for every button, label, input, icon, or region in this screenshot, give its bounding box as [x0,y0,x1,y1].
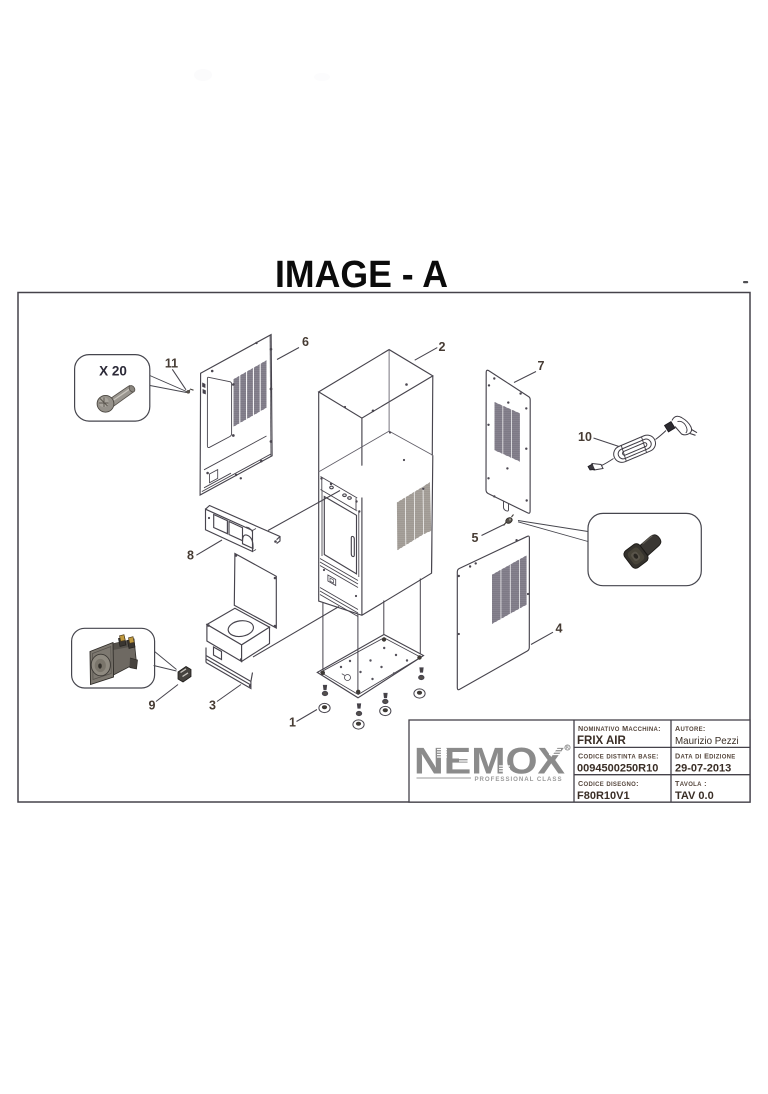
svg-text:3: 3 [209,699,216,713]
svg-text:FRIX AIR: FRIX AIR [577,735,626,747]
svg-text:8: 8 [187,549,194,563]
svg-text:5: 5 [472,531,479,545]
svg-text:10: 10 [578,430,592,444]
svg-text:9: 9 [149,699,156,713]
svg-text:0094500250R10: 0094500250R10 [577,763,658,775]
svg-text:F80R10V1: F80R10V1 [577,790,630,802]
svg-text:11: 11 [165,357,178,371]
svg-text:Maurizio Pezzi: Maurizio Pezzi [675,736,739,747]
svg-text:PROFESSIONAL CLASS: PROFESSIONAL CLASS [475,776,563,783]
svg-text:1: 1 [289,716,296,730]
svg-text:7: 7 [538,359,545,373]
svg-text:2: 2 [439,340,446,354]
svg-text:TAV 0.0: TAV 0.0 [675,790,714,802]
svg-text:6: 6 [302,335,309,349]
svg-text:X 20: X 20 [99,364,127,379]
svg-text:29-07-2013: 29-07-2013 [675,763,731,775]
svg-text:4: 4 [556,622,563,636]
svg-text:IMAGE - A: IMAGE - A [275,254,448,296]
